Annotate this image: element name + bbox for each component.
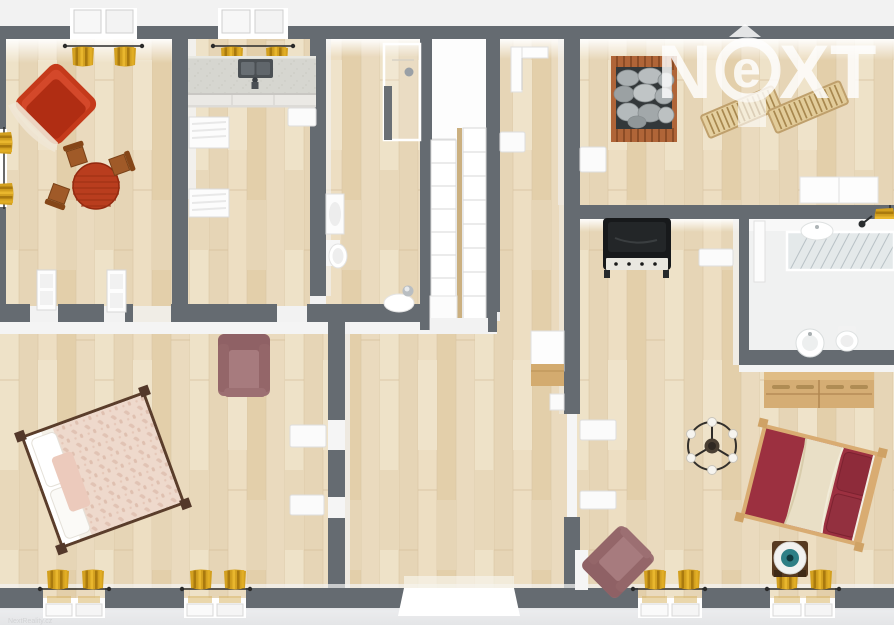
svg-text:e: e xyxy=(732,41,761,99)
svg-text:T: T xyxy=(830,30,876,115)
svg-text:X: X xyxy=(779,30,830,115)
svg-text:N: N xyxy=(657,30,712,115)
svg-text:NextReality.cz: NextReality.cz xyxy=(8,618,53,625)
